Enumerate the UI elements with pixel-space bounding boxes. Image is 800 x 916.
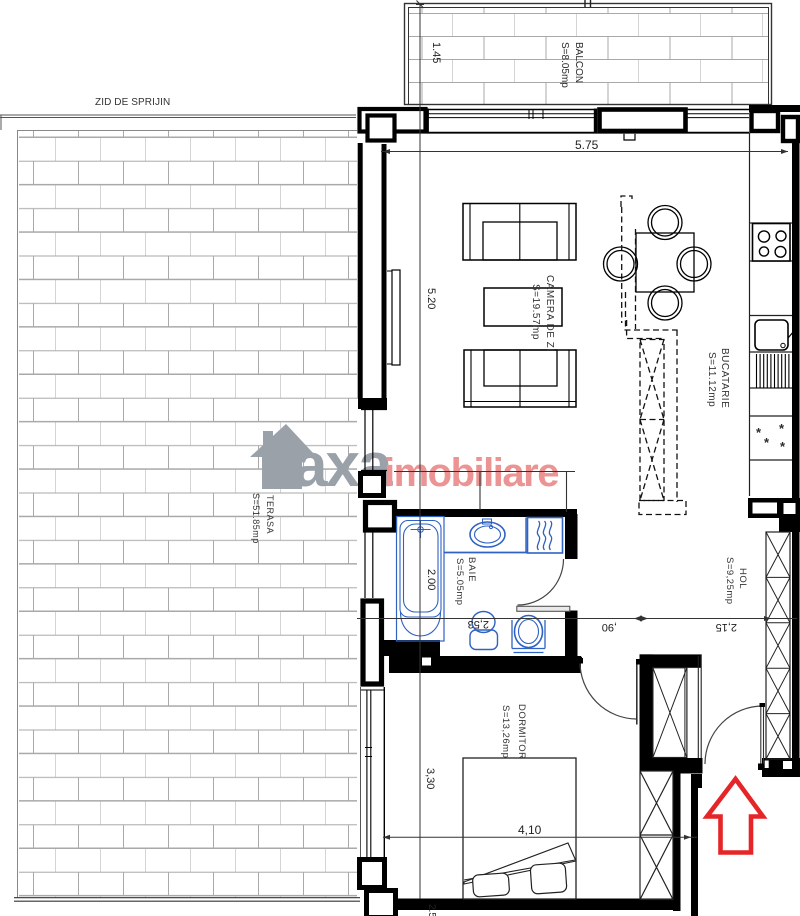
svg-text:2.5: 2.5 [426, 904, 437, 916]
svg-text:4,10: 4,10 [518, 823, 542, 837]
svg-text:CAMERA DE ZI: CAMERA DE ZI [544, 275, 555, 352]
svg-text:2,15: 2,15 [716, 621, 737, 633]
svg-text:BALCON: BALCON [573, 42, 584, 83]
svg-text:S=13,26mp: S=13,26mp [500, 705, 511, 758]
svg-text:5.20: 5.20 [425, 288, 437, 309]
svg-text:TERASA: TERASA [265, 495, 275, 534]
svg-text:S=19.57mp: S=19.57mp [530, 284, 541, 340]
svg-text:S=5.05mp: S=5.05mp [454, 558, 465, 606]
svg-text:2,53: 2,53 [468, 618, 489, 630]
svg-text:5.75: 5.75 [575, 138, 599, 152]
svg-text:,90: ,90 [602, 621, 617, 633]
svg-text:BUCATARIE: BUCATARIE [719, 348, 730, 408]
svg-text:imobiliare: imobiliare [384, 451, 558, 495]
svg-text:BAIE: BAIE [466, 557, 477, 583]
svg-text:HOL: HOL [737, 568, 748, 589]
svg-text:ZID DE SPRIJIN: ZID DE SPRIJIN [95, 97, 170, 108]
svg-text:1.45: 1.45 [430, 42, 442, 63]
svg-text:S=51.85mp: S=51.85mp [251, 493, 261, 544]
svg-text:S=11.12mp: S=11.12mp [706, 352, 717, 407]
svg-text:DORMITOR: DORMITOR [516, 704, 527, 760]
svg-text:S=8.05mp: S=8.05mp [559, 42, 570, 88]
svg-text:2.00: 2.00 [425, 569, 437, 590]
svg-text:S=9,25mp: S=9,25mp [724, 557, 735, 605]
svg-text:3,30: 3,30 [424, 768, 436, 789]
